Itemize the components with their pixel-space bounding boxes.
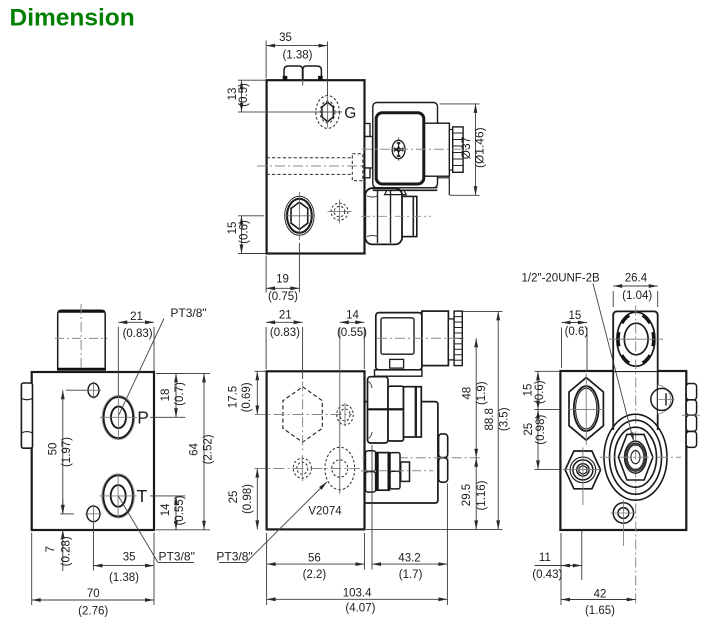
svg-text:(0.6): (0.6) [239,220,251,244]
svg-text:(1.9): (1.9) [476,381,488,405]
svg-text:14: 14 [346,310,359,322]
svg-text:(1.65): (1.65) [585,605,615,617]
svg-text:(1.04): (1.04) [622,290,652,302]
svg-text:13: 13 [227,88,239,101]
svg-text:P: P [137,408,149,428]
svg-text:88.8: 88.8 [484,408,496,430]
svg-text:(1.7): (1.7) [399,569,423,581]
svg-text:(0.5): (0.5) [238,83,250,107]
svg-text:(2.76): (2.76) [78,606,108,618]
svg-text:25: 25 [523,423,535,436]
svg-text:(0.75): (0.75) [268,291,298,303]
svg-text:(0.98): (0.98) [242,484,254,514]
svg-text:29.5: 29.5 [461,484,473,506]
svg-text:(3.5): (3.5) [499,407,511,431]
svg-text:15: 15 [569,310,582,322]
svg-text:(Ø1.46): (Ø1.46) [473,127,487,168]
svg-text:(0.6): (0.6) [534,380,546,404]
svg-text:26.4: 26.4 [625,273,648,285]
svg-text:42: 42 [594,588,607,600]
svg-text:15: 15 [523,384,535,397]
svg-text:56: 56 [308,553,321,565]
svg-text:17.5: 17.5 [228,386,240,408]
svg-text:7: 7 [45,546,57,552]
svg-text:(1.97): (1.97) [61,437,73,467]
svg-text:Dimension: Dimension [10,4,135,31]
svg-text:(0.6): (0.6) [565,326,589,338]
svg-text:43.2: 43.2 [398,553,420,565]
svg-text:21: 21 [130,311,143,323]
svg-text:(2.2): (2.2) [303,569,327,581]
svg-text:48: 48 [462,387,474,400]
svg-text:15: 15 [227,222,239,235]
svg-text:(0.55): (0.55) [337,327,367,339]
svg-text:19: 19 [276,274,289,286]
svg-text:18: 18 [160,389,172,402]
svg-text:(0.55): (0.55) [174,495,186,525]
svg-text:1/2"-20UNF-2B: 1/2"-20UNF-2B [522,272,601,284]
svg-text:(0.83): (0.83) [270,327,300,339]
svg-text:PT3/8": PT3/8" [159,549,195,563]
svg-text:G: G [344,105,356,122]
svg-text:(0.43): (0.43) [532,569,562,581]
svg-text:(0.69): (0.69) [241,382,253,412]
svg-text:(0.7): (0.7) [174,382,186,406]
svg-text:21: 21 [279,310,292,322]
svg-text:PT3/8": PT3/8" [170,306,206,320]
svg-text:Ø37: Ø37 [459,136,473,159]
svg-text:(0.83): (0.83) [123,328,153,340]
svg-text:(1.38): (1.38) [282,50,312,62]
svg-text:35: 35 [123,551,136,563]
svg-text:25: 25 [228,491,240,504]
svg-text:(1.38): (1.38) [109,572,139,584]
svg-text:70: 70 [87,588,100,600]
svg-text:V2074: V2074 [308,506,342,518]
svg-text:(4.07): (4.07) [345,603,375,615]
svg-text:(1.16): (1.16) [476,480,488,510]
svg-text:14: 14 [160,503,172,516]
svg-text:35: 35 [279,32,292,44]
svg-text:64: 64 [189,443,201,456]
svg-text:(0.98): (0.98) [535,415,547,445]
svg-text:103.4: 103.4 [343,588,372,600]
svg-text:T: T [137,486,148,506]
svg-text:50: 50 [48,443,60,456]
svg-text:11: 11 [539,552,551,564]
svg-text:(0.28): (0.28) [61,536,73,566]
svg-text:(2.52): (2.52) [202,434,214,464]
